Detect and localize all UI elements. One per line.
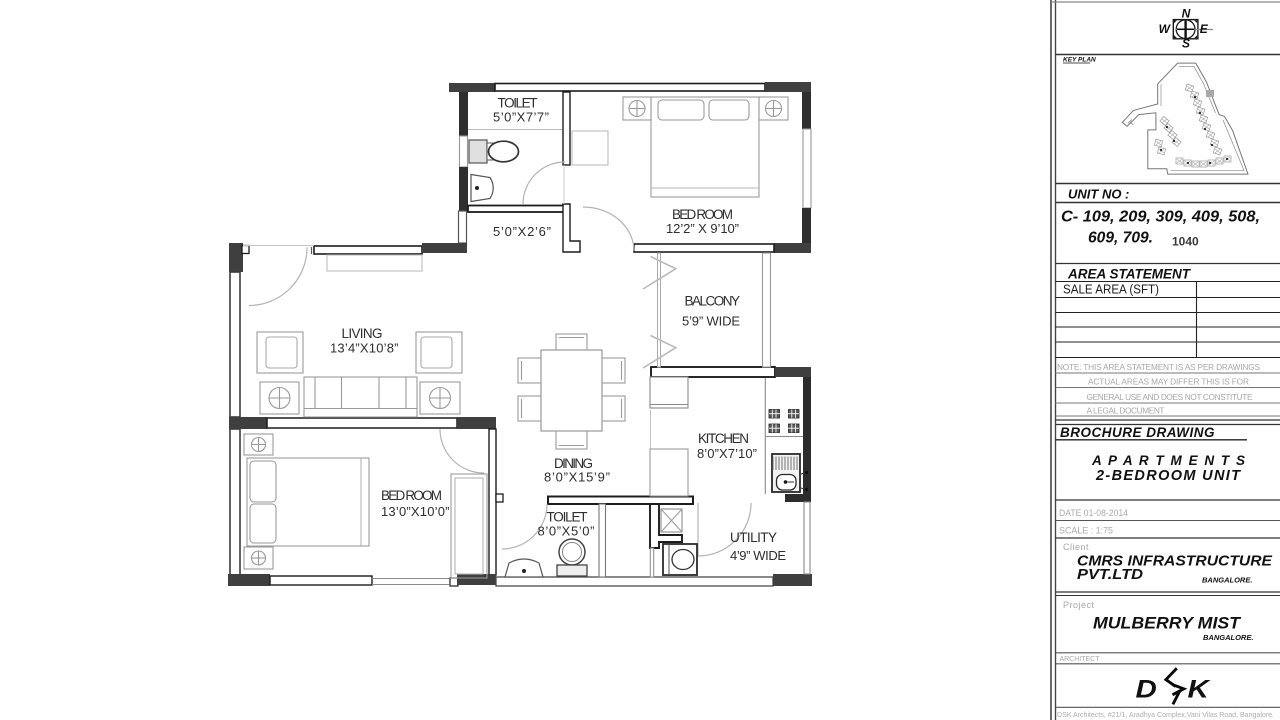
svg-text:LIVING: LIVING	[342, 326, 383, 341]
svg-text:DATE 01-08-2014: DATE 01-08-2014	[1059, 508, 1128, 519]
svg-text:BANGALORE.: BANGALORE.	[1202, 576, 1252, 585]
svg-text:KEY PLAN: KEY PLAN	[1063, 57, 1096, 64]
svg-text:13’0”X10’0”: 13’0”X10’0”	[381, 504, 450, 519]
svg-text:E: E	[1200, 22, 1209, 36]
svg-text:BROCHURE DRAWING: BROCHURE DRAWING	[1060, 425, 1215, 440]
svg-text:C- 109, 209, 309, 409, 508,: C- 109, 209, 309, 409, 508,	[1061, 209, 1260, 226]
svg-text:UTILITY: UTILITY	[730, 530, 777, 545]
svg-text:ARCHITECT: ARCHITECT	[1060, 654, 1100, 663]
svg-text:TOILET: TOILET	[498, 96, 538, 111]
svg-text:5’0”X7’7”: 5’0”X7’7”	[493, 110, 549, 125]
svg-text:ACTUAL AREAS MAY DIFFER THIS I: ACTUAL AREAS MAY DIFFER THIS IS FOR	[1088, 377, 1249, 387]
svg-text:5’9” WIDE: 5’9” WIDE	[682, 314, 740, 329]
svg-text:UNIT NO :: UNIT NO :	[1068, 187, 1129, 202]
svg-text:609, 709.: 609, 709.	[1088, 230, 1153, 247]
svg-text:W: W	[1159, 22, 1172, 36]
svg-text:12’2” X 9’10”: 12’2” X 9’10”	[666, 221, 739, 236]
svg-text:Project: Project	[1063, 600, 1095, 610]
svg-text:BED ROOM: BED ROOM	[672, 207, 733, 222]
svg-text:A P A R T M E N T S: A P A R T M E N T S	[1091, 453, 1245, 468]
svg-text:AREA STATEMENT: AREA STATEMENT	[1067, 267, 1192, 282]
svg-text:1040: 1040	[1172, 235, 1199, 249]
svg-text:DSK Architects, #21/1, Aradhya: DSK Architects, #21/1, Aradhya Complex,V…	[1057, 710, 1274, 719]
svg-text:PVT.LTD: PVT.LTD	[1077, 566, 1143, 583]
svg-text:BANGALORE.: BANGALORE.	[1203, 633, 1253, 642]
svg-text:MULBERRY MIST: MULBERRY MIST	[1093, 614, 1242, 633]
svg-text:4’9” WIDE: 4’9” WIDE	[730, 548, 786, 563]
svg-text:13’4”X10’8”: 13’4”X10’8”	[330, 341, 399, 356]
svg-text:8’0”X5’0”: 8’0”X5’0”	[538, 524, 595, 539]
svg-text:N: N	[1182, 7, 1191, 21]
svg-text:5’0”X2’6”: 5’0”X2’6”	[493, 224, 551, 239]
svg-text:BALCONY: BALCONY	[685, 294, 741, 309]
svg-text:K: K	[1188, 675, 1212, 703]
svg-text:KITCHEN: KITCHEN	[698, 431, 749, 446]
svg-text:SALE AREA (SFT): SALE AREA (SFT)	[1063, 283, 1159, 297]
svg-text:A LEGAL DOCUMENT: A LEGAL DOCUMENT	[1087, 406, 1165, 416]
svg-text:8’0”X7’10”: 8’0”X7’10”	[697, 446, 757, 461]
svg-text:Client: Client	[1063, 542, 1089, 552]
svg-text:SCALE : 1:75: SCALE : 1:75	[1059, 526, 1113, 537]
svg-text:GENERAL USE AND DOES NOT CONST: GENERAL USE AND DOES NOT CONSTITUTE	[1087, 392, 1253, 402]
svg-text:D: D	[1136, 675, 1157, 703]
svg-text:BED ROOM: BED ROOM	[381, 488, 442, 503]
svg-text:S: S	[1182, 37, 1190, 51]
svg-text:8’0”X15’9”: 8’0”X15’9”	[544, 470, 610, 485]
svg-text:2-BEDROOM UNIT: 2-BEDROOM UNIT	[1095, 468, 1241, 484]
svg-text:NOTE: THIS AREA STATEMENT IS A: NOTE: THIS AREA STATEMENT IS AS PER DRAW…	[1057, 362, 1260, 372]
svg-text:TOILET: TOILET	[547, 510, 588, 525]
